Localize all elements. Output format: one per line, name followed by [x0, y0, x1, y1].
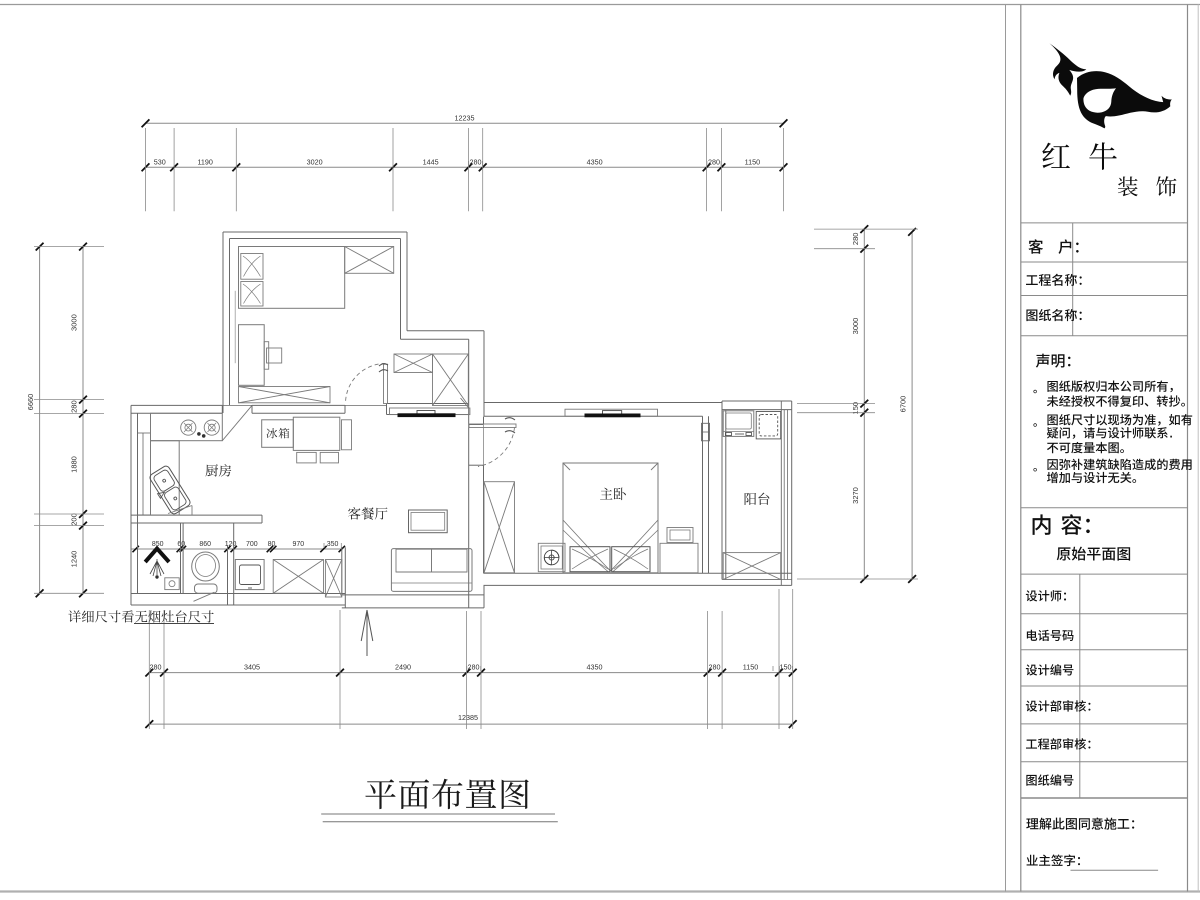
svg-text:1240: 1240 [70, 551, 79, 568]
svg-text:6700: 6700 [898, 396, 907, 413]
svg-text:200: 200 [70, 513, 79, 526]
svg-text:4350: 4350 [587, 158, 603, 167]
svg-text:280: 280 [851, 233, 860, 246]
svg-text:3405: 3405 [244, 663, 260, 672]
svg-text:1150: 1150 [745, 158, 760, 167]
svg-text:3000: 3000 [70, 314, 79, 331]
svg-text:1190: 1190 [197, 158, 212, 167]
svg-text:150: 150 [780, 663, 792, 672]
svg-text:860: 860 [199, 541, 211, 548]
svg-text:60: 60 [177, 541, 185, 548]
svg-text:280: 280 [150, 663, 162, 672]
svg-text:350: 350 [327, 541, 339, 548]
svg-text:3020: 3020 [307, 158, 323, 167]
svg-text:6660: 6660 [26, 394, 35, 411]
svg-text:80: 80 [268, 541, 276, 548]
svg-text:1150: 1150 [743, 663, 758, 672]
svg-text:970: 970 [292, 541, 304, 548]
svg-text:12235: 12235 [455, 113, 475, 122]
svg-text:1880: 1880 [70, 456, 79, 473]
svg-text:.: . [1170, 427, 1173, 440]
svg-text:280: 280 [470, 158, 482, 167]
svg-text:700: 700 [246, 541, 258, 548]
svg-text:3270: 3270 [851, 487, 860, 504]
svg-text:120: 120 [225, 541, 237, 548]
svg-text:530: 530 [154, 158, 166, 167]
svg-text:12385: 12385 [458, 713, 478, 722]
svg-text:280: 280 [70, 400, 79, 413]
svg-text:280: 280 [468, 663, 480, 672]
svg-text:2490: 2490 [395, 663, 411, 672]
svg-text:4350: 4350 [587, 663, 603, 672]
svg-text:280: 280 [708, 158, 720, 167]
svg-text:3000: 3000 [851, 318, 860, 335]
svg-text:280: 280 [709, 663, 721, 672]
svg-text:1445: 1445 [423, 158, 439, 167]
